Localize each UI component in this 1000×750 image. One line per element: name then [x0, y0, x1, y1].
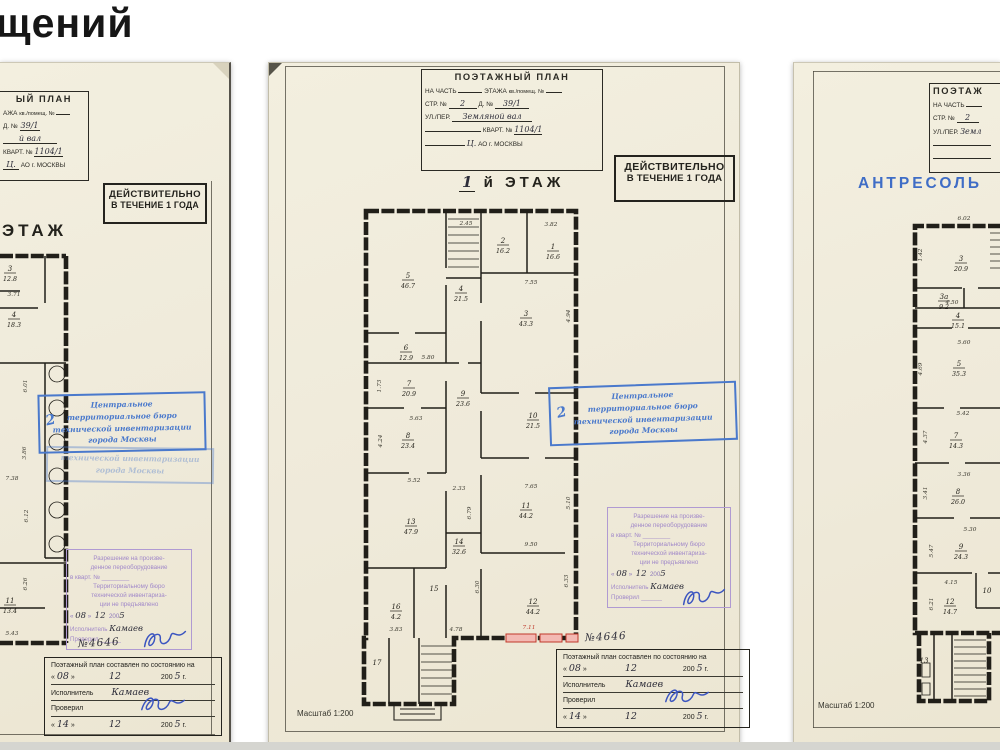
dimension-label: 7.11 — [523, 625, 536, 631]
room-area-label: 44.2 — [518, 513, 533, 520]
room-area-label: 12.9 — [399, 355, 413, 362]
room-area-label: 18.3 — [7, 322, 21, 329]
document-floor-plan-left: ЫЙ ПЛАН АЖА кв./помещ. № Д. № 39/1 й вал… — [0, 62, 231, 745]
dimension-label: 5.80 — [422, 355, 435, 361]
dimension-label: 6.02 — [958, 216, 971, 222]
room-area-label: 43.3 — [518, 321, 533, 328]
room-area-label: 47.9 — [403, 529, 418, 536]
footer-date-box: Поэтажный план составлен по состоянию на… — [44, 657, 222, 736]
scale-label: Масштаб 1:200 — [297, 709, 353, 718]
plan-number: №4646 — [585, 630, 627, 644]
dimension-label: 5.43 — [6, 631, 19, 637]
room-number-label: 16 — [392, 603, 401, 611]
blue-bti-stamp: 2 Центральное территориальное бюро техни… — [548, 381, 738, 447]
dimension-label: 7.65 — [525, 484, 538, 490]
room-area-label: 20.9 — [953, 266, 968, 273]
dimension-label: 4.69 — [918, 362, 924, 376]
room-area-label: 23.6 — [455, 401, 470, 408]
room-number-label: 4 — [11, 311, 16, 319]
dimension-label: 4.50 — [945, 300, 959, 306]
dimension-label: 4.15 — [944, 580, 958, 586]
room-number-label: 3 — [959, 255, 964, 263]
room-area-label: 21.5 — [525, 423, 540, 430]
room-number-label: 13 — [920, 657, 929, 665]
room-area-label: 32.6 — [452, 549, 466, 556]
room-area-label: 24.3 — [953, 554, 968, 561]
dimension-label: 3.83 — [390, 627, 403, 633]
room-number-label: 7 — [954, 432, 959, 440]
blue-bti-stamp: 2 Центральное территориальное бюро техни… — [37, 391, 206, 454]
purple-permission-stamp: Разрешение на произве- денное переоборуд… — [66, 549, 192, 650]
dimension-label: 4.94 — [566, 309, 572, 323]
room-number-label: 5 — [406, 272, 411, 280]
dimension-label: 5.42 — [957, 411, 970, 417]
dimension-label: 7.38 — [6, 476, 19, 482]
room-number-label: 10 — [529, 412, 538, 420]
room-area-label: 4.2 — [390, 614, 401, 621]
dimension-label: 6.01 — [23, 380, 29, 393]
room-area-label: 15.1 — [951, 323, 965, 330]
room-area-label: 35.3 — [952, 371, 966, 378]
room-area-label: 23.4 — [400, 443, 415, 450]
room-number-label: 4 — [955, 312, 960, 320]
dimension-label: 3.41 — [923, 487, 929, 500]
room-area-label: 13.4 — [3, 608, 17, 615]
dimension-label: 2.33 — [452, 486, 466, 492]
room-number-label: 15 — [430, 585, 439, 593]
room-area-label: 44.2 — [525, 609, 540, 616]
room-number-label: 9 — [959, 543, 964, 551]
room-number-label: 4 — [458, 285, 463, 293]
room-number-label: 2 — [500, 237, 506, 245]
room-number-label: 14 — [455, 538, 464, 546]
blue-bti-stamp-ghost: технической инвентаризации города Москвы — [46, 446, 214, 484]
room-area-label: 16.6 — [546, 254, 560, 261]
purple-permission-stamp: Разрешение на произве- денное переоборуд… — [607, 507, 731, 608]
dimension-label: 1.42 — [918, 248, 924, 261]
room-number-label: 5 — [957, 360, 962, 368]
room-area-label: 14.7 — [943, 609, 957, 616]
room-area-label: 20.9 — [401, 391, 416, 398]
desk-background-strip — [0, 742, 1000, 750]
plan-number: №4646 — [78, 636, 120, 650]
dimension-label: 5.30 — [964, 527, 977, 533]
room-number-label: 3 — [524, 310, 529, 318]
dimension-label: 1.73 — [377, 379, 383, 392]
signature — [137, 693, 189, 717]
room-number-label: 17 — [373, 659, 382, 667]
dimension-label: 6.30 — [475, 580, 481, 593]
dimension-label: 4.24 — [378, 434, 384, 448]
room-area-label: 46.7 — [400, 283, 415, 290]
dimension-label: 6.21 — [929, 598, 935, 611]
document-floor-plan-first-floor: ПОЭТАЖНЫЙ ПЛАН НА ЧАСТЬ ЭТАЖА кв./помещ.… — [268, 62, 740, 746]
scale-label: Масштаб 1:200 — [818, 701, 874, 710]
room-number-label: 8 — [406, 432, 411, 440]
room-number-label: 6 — [404, 344, 409, 352]
dimension-label: 7.55 — [525, 280, 538, 286]
dimension-label: 6.26 — [23, 577, 29, 590]
dimension-label: 4.78 — [449, 627, 463, 633]
dimension-label: 4.37 — [923, 430, 929, 444]
room-number-label: 3 — [8, 265, 13, 273]
room-number-label: 13 — [407, 518, 416, 526]
room-area-label: 21.5 — [453, 296, 468, 303]
room-area-label: 14.3 — [949, 443, 963, 450]
dimension-label: 3.36 — [958, 472, 971, 478]
dimension-label: 5.10 — [566, 496, 572, 509]
dimension-label: 3.82 — [545, 222, 558, 228]
dimension-label: 5.60 — [958, 340, 971, 346]
dimension-label: 6.12 — [24, 509, 30, 522]
room-area-label: 16.2 — [496, 248, 510, 255]
dimension-label: 2.45 — [459, 221, 473, 227]
dimension-label: 3.71 — [8, 292, 21, 298]
document-floor-plan-antresol: ПОЭТАЖ НА ЧАСТЬ СТР. № 2 УЛ./ПЕР. Земл А… — [793, 62, 1000, 745]
room-number-label: 11 — [6, 597, 15, 605]
footer-date-box: Поэтажный план составлен по состоянию на… — [556, 649, 750, 728]
room-area-label: 26.0 — [950, 499, 965, 506]
room-number-label: 8 — [956, 488, 961, 496]
dimension-label: 3.86 — [22, 446, 28, 459]
dimension-label: 6.33 — [564, 574, 570, 587]
room-number-label: 9 — [461, 390, 466, 398]
room-area-label: 12.8 — [3, 276, 17, 283]
signature — [661, 685, 713, 709]
room-number-label: 7 — [407, 380, 412, 388]
floor-plan-drawing: 320.93а9.2415.1535.3714.3826.0924.31214.… — [794, 63, 1000, 745]
room-number-label: 12 — [946, 598, 955, 606]
page-heading-fragment: щений — [0, 0, 134, 47]
dimension-label: 5.47 — [929, 544, 935, 557]
executor-name: Камаев — [625, 679, 663, 690]
dimension-label: 5.52 — [408, 478, 421, 484]
scanned-floorplans-page: щений ЫЙ ПЛАН АЖА кв./помещ. № Д. № 39/1… — [0, 0, 1000, 750]
room-number-label: 10 — [983, 587, 992, 595]
room-number-label: 1 — [551, 243, 555, 251]
room-number-label: 11 — [522, 502, 531, 510]
dimension-label: 5.63 — [410, 416, 423, 422]
dimension-label: 6.79 — [467, 506, 473, 519]
dimension-label: 9.50 — [525, 542, 538, 548]
room-number-label: 12 — [529, 598, 538, 606]
